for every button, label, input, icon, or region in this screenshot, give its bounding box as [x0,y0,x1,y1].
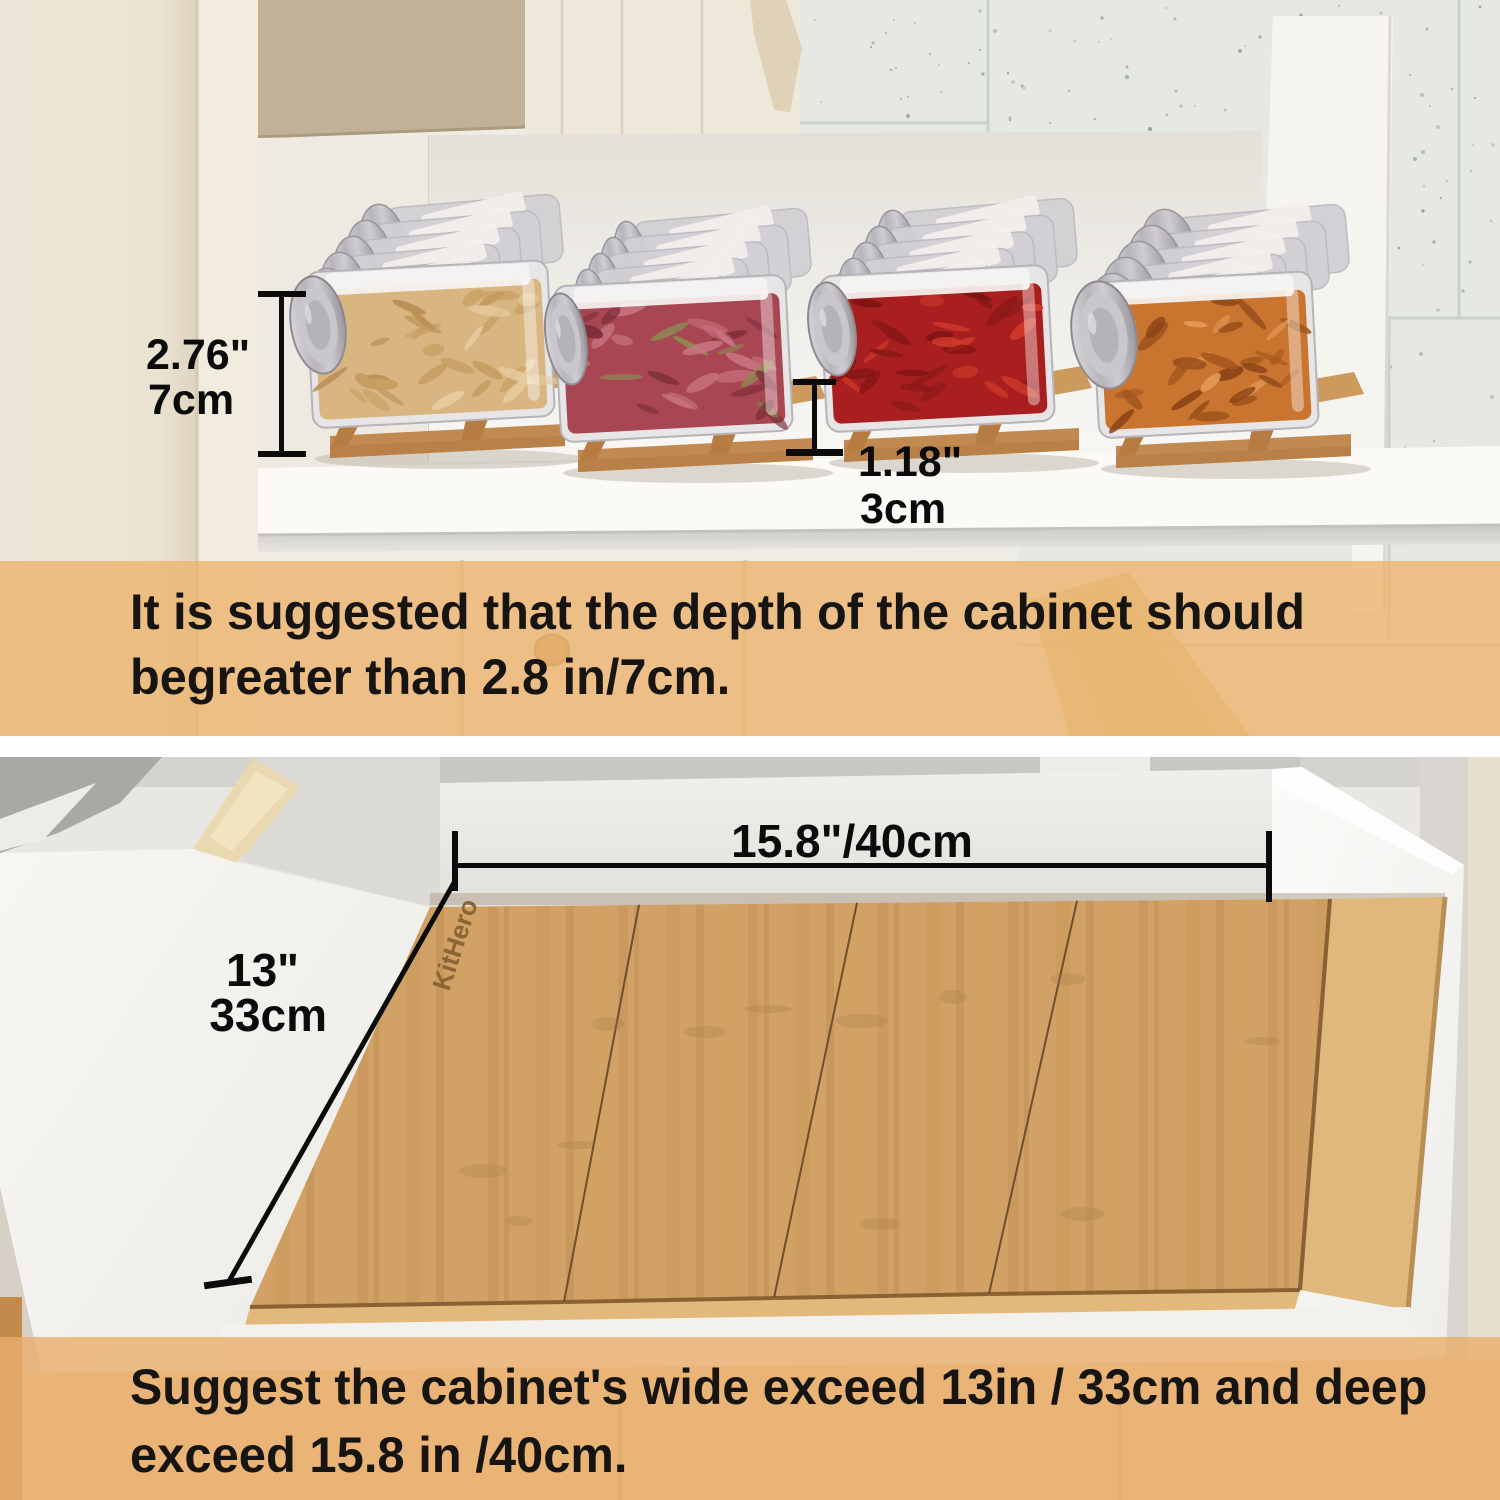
svg-text:3cm: 3cm [860,485,946,533]
svg-text:1.18": 1.18" [858,438,962,486]
svg-text:33cm: 33cm [209,989,327,1041]
svg-text:7cm: 7cm [148,376,234,424]
svg-text:2.76": 2.76" [146,331,250,379]
svg-text:15.8"/40cm: 15.8"/40cm [731,815,973,867]
